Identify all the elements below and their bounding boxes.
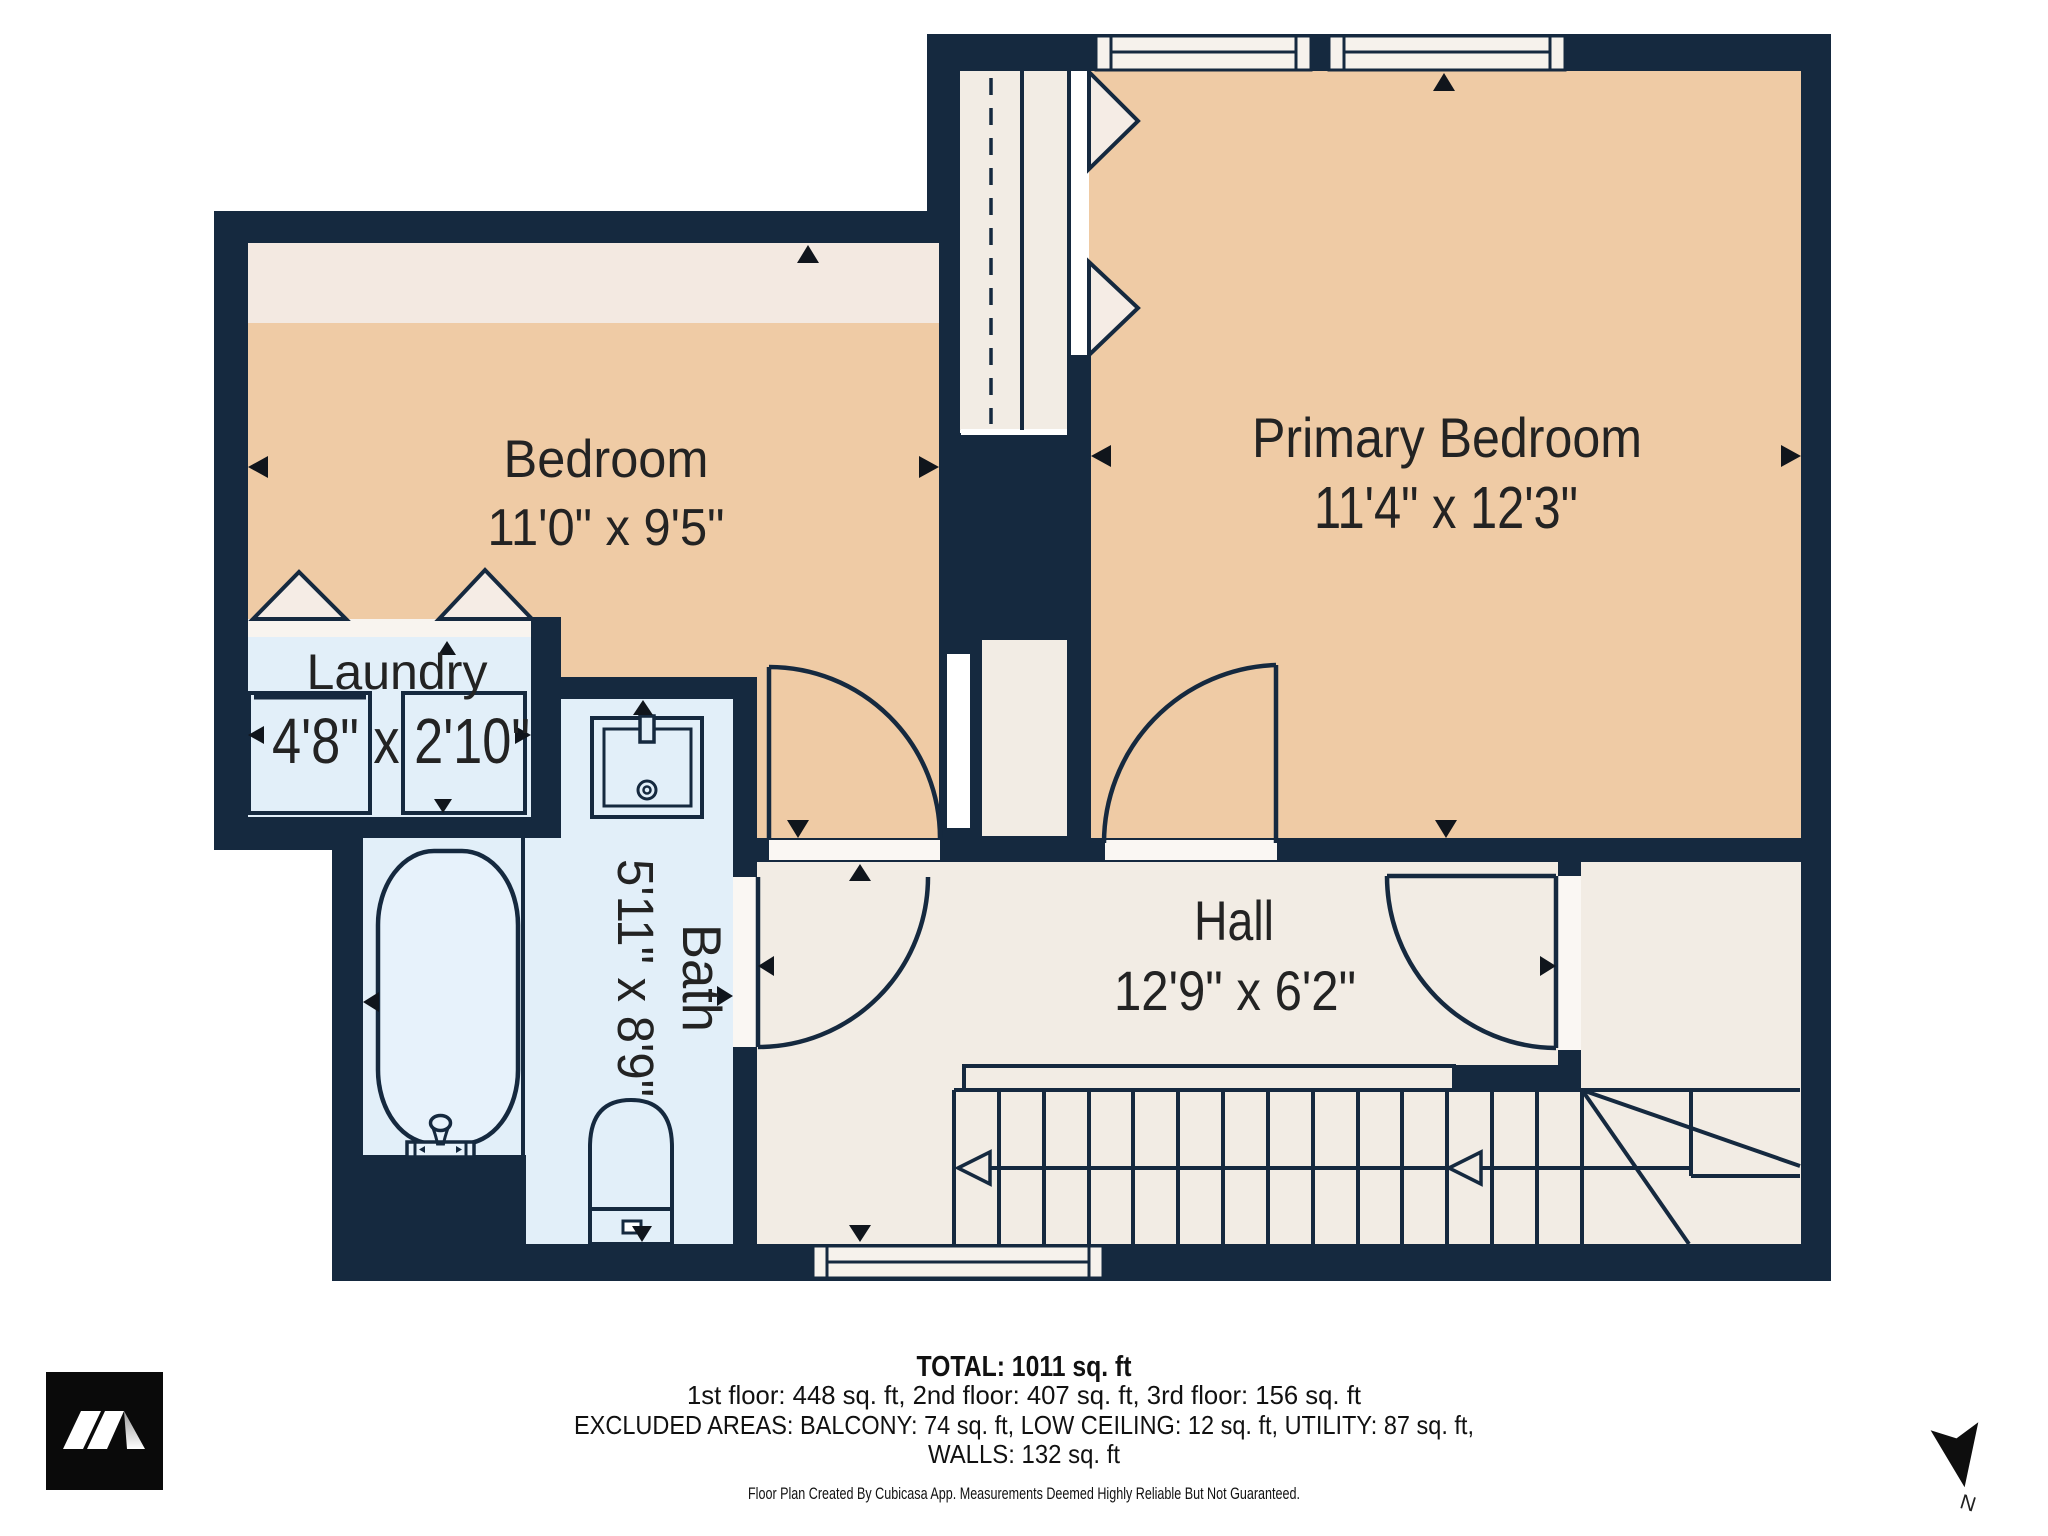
- svg-text:4'8" x 2'10": 4'8" x 2'10": [272, 705, 530, 777]
- svg-text:TOTAL: 1011 sq. ft: TOTAL: 1011 sq. ft: [917, 1351, 1132, 1383]
- svg-text:WALLS: 132 sq. ft: WALLS: 132 sq. ft: [928, 1439, 1121, 1469]
- svg-text:Primary Bedroom: Primary Bedroom: [1252, 406, 1642, 469]
- svg-text:1st floor: 448 sq. ft, 2nd flo: 1st floor: 448 sq. ft, 2nd floor: 407 sq…: [687, 1380, 1362, 1410]
- svg-text:Bedroom: Bedroom: [504, 430, 709, 489]
- svg-text:11'0" x 9'5": 11'0" x 9'5": [488, 499, 725, 557]
- svg-text:Floor Plan Created By Cubicasa: Floor Plan Created By Cubicasa App. Meas…: [748, 1485, 1300, 1503]
- svg-text:11'4" x 12'3": 11'4" x 12'3": [1314, 475, 1578, 541]
- svg-text:12'9" x 6'2": 12'9" x 6'2": [1114, 959, 1356, 1022]
- svg-text:Bath: Bath: [671, 924, 733, 1032]
- svg-text:Laundry: Laundry: [307, 644, 488, 700]
- svg-text:EXCLUDED AREAS: BALCONY: 74 sq: EXCLUDED AREAS: BALCONY: 74 sq. ft, LOW …: [574, 1410, 1474, 1440]
- svg-text:Hall: Hall: [1194, 889, 1274, 952]
- svg-text:5'11" x 8'9": 5'11" x 8'9": [607, 859, 664, 1097]
